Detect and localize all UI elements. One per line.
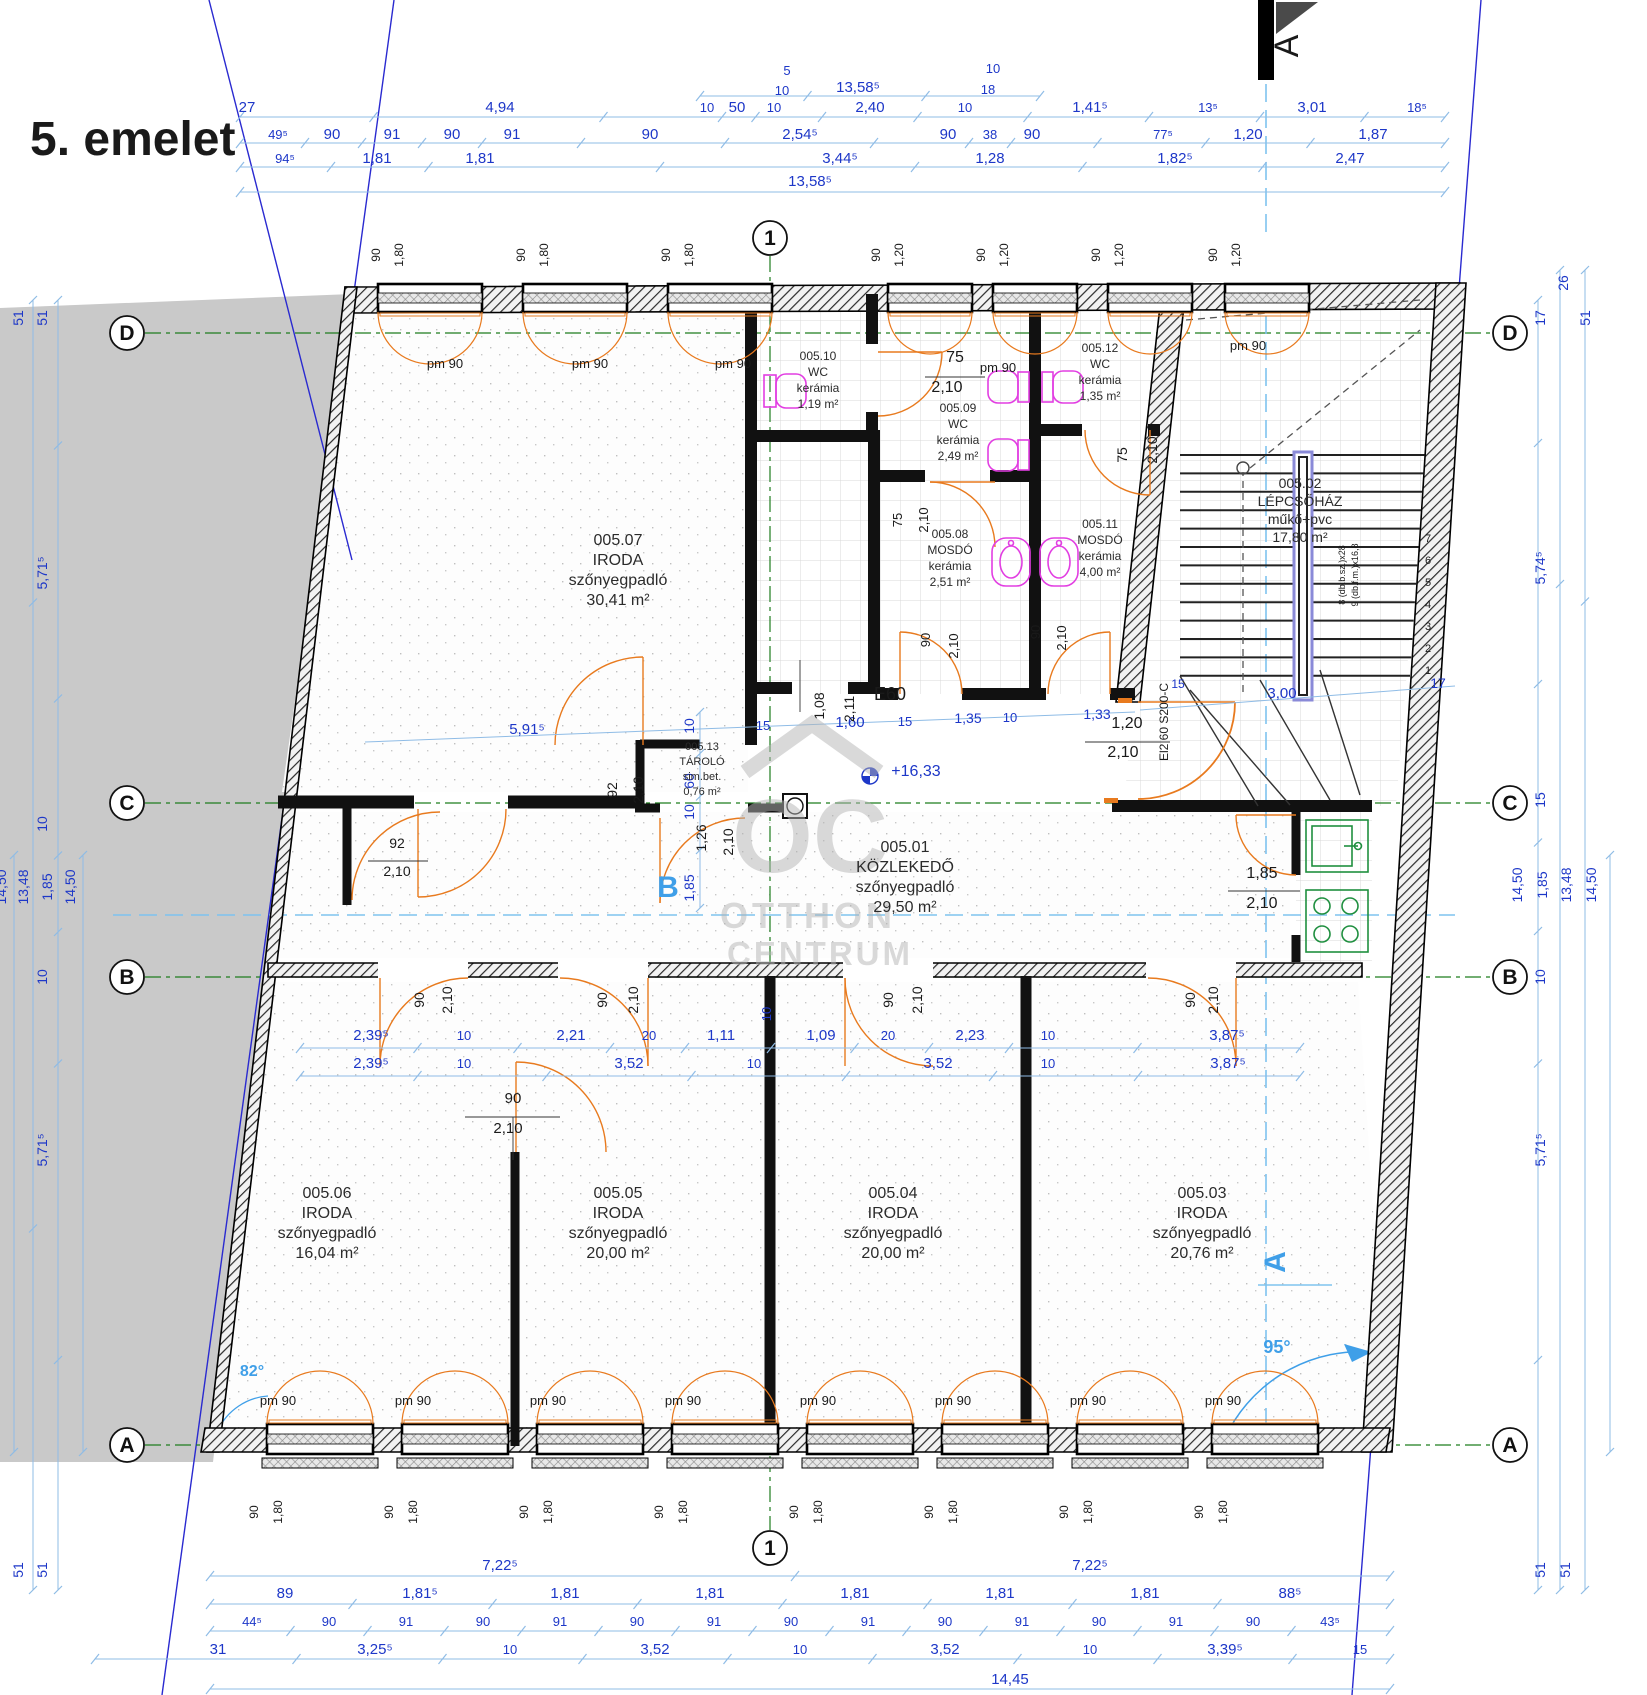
dim-label: pm 90 (530, 1393, 566, 1408)
dim-label: 90 (974, 248, 988, 262)
dim-label: 90 (369, 248, 383, 262)
dim-label: 91 (1169, 1614, 1183, 1629)
dim-label: 15 (1171, 677, 1185, 691)
floorplan-page: OC OTTHON CENTRUM 51013,58⁵1018274,94105… (0, 0, 1647, 1695)
dim-label: 13,48 (1558, 867, 1574, 902)
dim-label: 90 (630, 1614, 644, 1629)
dim-label: 1,20 (1111, 715, 1142, 732)
dim-label: 18 (981, 82, 995, 97)
dim-label: 3,25⁵ (357, 1641, 392, 1658)
watermark-line2: CENTRUM (727, 935, 913, 972)
dim-label: 3,52 (923, 1055, 952, 1072)
dim-label: 10 (700, 100, 714, 115)
dim-label: 2,10 (630, 776, 646, 803)
dim-label: 90 (247, 1505, 261, 1519)
dim-label: 94⁵ (275, 151, 295, 166)
dim-label: 89 (277, 1585, 294, 1602)
dim-label: 2,47 (1335, 150, 1364, 167)
dim-label: 90 (918, 633, 933, 647)
dim-chain (236, 112, 1449, 122)
dim-label: 10 (986, 61, 1000, 76)
dim-label: 2,21 (556, 1027, 585, 1044)
dim-label: pm 90 (427, 356, 463, 371)
svg-text:C: C (119, 792, 134, 815)
dim-label: 1,80 (946, 1500, 960, 1524)
dim-label: 10 (503, 1642, 517, 1657)
dim-label: 3,52 (640, 1641, 669, 1658)
dim-label: 3,00 (1267, 685, 1296, 702)
dim-label: 1,81 (362, 150, 391, 167)
dim-label: 2,10 (720, 828, 736, 855)
dim-label: 91 (399, 1614, 413, 1629)
dim-label: 1,20 (1112, 243, 1126, 267)
dim-label: 1,80 (682, 243, 696, 267)
dim-label: El2 60 S200-C (1157, 683, 1171, 761)
dim-chain (206, 1571, 1394, 1581)
dim-label: 77⁵ (1153, 127, 1173, 142)
dim-label: 13,48 (15, 869, 31, 904)
dim-label: 2,10 (1054, 625, 1069, 650)
dim-label: 90 (324, 126, 341, 143)
dim-label: 10 (759, 1007, 774, 1021)
dim-label: 90 (594, 992, 610, 1008)
dim-label: 51 (34, 310, 50, 326)
dim-label: 1,80 (1216, 1500, 1230, 1524)
dim-chain (206, 1599, 1394, 1609)
dim-label: 1,85 (39, 873, 55, 900)
dim-label: 43⁵ (1320, 1614, 1340, 1629)
grid-bubble-C: C (110, 786, 144, 820)
dim-label: 90 (411, 992, 427, 1008)
dim-label: 75 (1114, 447, 1130, 463)
dim-label: 5,71⁵ (1532, 1133, 1548, 1166)
dim-label: 95° (1263, 1337, 1290, 1357)
dim-chain (206, 1626, 1394, 1636)
dim-label: 38 (983, 127, 997, 142)
dim-label: 8 (db.b.sz.)x28 (1337, 545, 1347, 605)
dim-label: 5 (1425, 577, 1431, 589)
dim-chain (91, 1654, 1394, 1664)
dim-label: 51 (1532, 1562, 1548, 1578)
dim-label: pm 90 (665, 1393, 701, 1408)
dim-label: 2,10 (493, 1120, 522, 1137)
dim-label: 90 (1206, 248, 1220, 262)
dim-label: 90 (659, 248, 673, 262)
dim-label: 44⁵ (242, 1614, 262, 1629)
dim-label: 90 (1057, 1505, 1071, 1519)
dim-label: 2,39⁵ (353, 1055, 388, 1072)
dim-label: 90 (444, 126, 461, 143)
dim-label: 1,80 (811, 1500, 825, 1524)
dim-label: 1,20 (1229, 243, 1243, 267)
dim-label: pm 90 (260, 1393, 296, 1408)
dim-chain (1581, 266, 1589, 1594)
dim-label: 10 (457, 1028, 471, 1043)
watermark-line1: OTTHON (720, 895, 896, 936)
dim-label: 7 (1425, 533, 1431, 545)
dim-label: 14,45 (991, 1671, 1029, 1688)
dim-label: 2,10 (625, 986, 641, 1013)
dim-chain (1556, 266, 1564, 1594)
dim-label: 13⁵ (1198, 100, 1218, 115)
dim-label: 91 (861, 1614, 875, 1629)
dim-label: 1,35 (954, 710, 981, 726)
dim-label: 20 (881, 1028, 895, 1043)
svg-text:1: 1 (764, 1537, 776, 1560)
dim-label: 17 (1532, 310, 1548, 326)
dim-label: 3,87⁵ (1209, 1027, 1244, 1044)
dim-label: 1,09 (806, 1027, 835, 1044)
dim-label: 31 (210, 1641, 227, 1658)
dim-label: 26 (1555, 275, 1571, 291)
dim-label: 90 (869, 248, 883, 262)
dim-label: 14,50 (1509, 867, 1525, 902)
dim-label: 90 (938, 1614, 952, 1629)
dim-label: 13,58⁵ (788, 173, 832, 190)
dim-label: 1,81 (840, 1585, 869, 1602)
grid-bubble-1: 1 (753, 221, 787, 255)
dim-chain (1606, 851, 1614, 1456)
dim-label: 1,08 (811, 692, 827, 719)
dim-label: 88⁵ (1279, 1585, 1302, 1602)
svg-text:D: D (119, 322, 134, 345)
dim-label: 10 (767, 100, 781, 115)
dim-label: 14,50 (0, 869, 9, 904)
dim-label: 92 (604, 782, 620, 798)
dim-label: 90 (1182, 992, 1198, 1008)
dim-label: 91 (504, 126, 521, 143)
dim-label: 10 (1003, 710, 1017, 725)
dim-label: 2,10 (916, 507, 931, 532)
dim-label: 10 (1083, 1642, 1097, 1657)
dim-label: 4,94 (485, 99, 514, 116)
dim-label: pm 90 (1230, 338, 1266, 353)
dim-label: 1,80 (1081, 1500, 1095, 1524)
dim-label: 90 (1024, 126, 1041, 143)
dim-label: 1,20 (1233, 126, 1262, 143)
dim-label: 75 (890, 513, 905, 527)
grid-bubble-D: D (110, 316, 144, 350)
dim-label: pm 90 (800, 1393, 836, 1408)
grid-bubble-1: 1 (753, 1531, 787, 1565)
dim-label: 14,50 (1583, 867, 1599, 902)
dim-label: 10 (681, 718, 697, 734)
dim-label: 2,40 (855, 99, 884, 116)
dim-label: 49⁵ (268, 127, 288, 142)
dim-label: 2,39⁵ (353, 1027, 388, 1044)
dim-label: 90 (1246, 1614, 1260, 1629)
dim-label: 90 (517, 1505, 531, 1519)
dim-label: 10 (681, 804, 697, 820)
svg-text:B: B (119, 966, 134, 989)
dim-label: 15 (1353, 1642, 1367, 1657)
svg-text:B: B (1502, 966, 1517, 989)
dim-label: 91 (1015, 1614, 1029, 1629)
dim-label: 90 (1192, 1505, 1206, 1519)
dim-label: 1,81 (985, 1585, 1014, 1602)
dim-label: 10 (747, 1056, 761, 1071)
dim-label: 50 (729, 99, 746, 116)
dim-label: 90 (1028, 625, 1043, 639)
dim-label: 15 (756, 718, 770, 733)
dim-label: 1,81 (465, 150, 494, 167)
dim-label: 90 (514, 248, 528, 262)
dim-label: 82° (240, 1363, 264, 1380)
dim-label: 2 (1425, 643, 1431, 655)
dim-label: 5,71⁵ (34, 556, 50, 589)
dim-label: 10 (34, 969, 50, 985)
dim-label: 2,11 (841, 696, 857, 722)
dim-label: 1,41⁵ (1072, 99, 1107, 116)
grid-bubble-B: B (1493, 960, 1527, 994)
svg-text:1: 1 (764, 227, 776, 250)
dim-label: 17 (1430, 675, 1446, 691)
dim-label: 1,28 (975, 150, 1004, 167)
dim-label: 1,20 (892, 243, 906, 267)
dim-label: 3,01 (1297, 99, 1326, 116)
dim-label: A (1259, 1251, 1292, 1273)
dim-label: 10 (1532, 969, 1548, 985)
dim-label: 1,80 (676, 1500, 690, 1524)
dim-label: 90 (642, 126, 659, 143)
dim-label: 2,10 (1246, 895, 1277, 912)
dim-label: 27 (239, 99, 256, 116)
dim-label: 90 (322, 1614, 336, 1629)
dim-label: 5,74⁵ (1532, 551, 1548, 584)
dim-label: 90 (1089, 248, 1103, 262)
grid-bubble-C: C (1493, 786, 1527, 820)
dim-label: 75 (946, 349, 964, 366)
dim-label: 51 (1577, 310, 1593, 326)
svg-text:A: A (119, 1434, 134, 1457)
floor-plan-canvas: OC OTTHON CENTRUM 51013,58⁵1018274,94105… (0, 0, 1647, 1695)
grid-bubble-D: D (1493, 316, 1527, 350)
page-title: 5. emelet (30, 113, 235, 166)
dim-label: 2,54⁵ (782, 126, 817, 143)
dim-label: 2,10 (383, 863, 410, 879)
dim-label: +16,33 (891, 763, 940, 780)
dim-label: 1,87 (1358, 126, 1387, 143)
dim-label: 15 (898, 714, 912, 729)
dim-label: 1,20 (997, 243, 1011, 267)
dim-label: 14,50 (62, 869, 78, 904)
dim-label: 2,10 (1144, 436, 1160, 463)
grid-bubble-A: A (1493, 1428, 1527, 1462)
dim-label: 3,87⁵ (1210, 1055, 1245, 1072)
dim-label: 10 (775, 83, 789, 98)
grid-bubble-B: B (110, 960, 144, 994)
dim-label: 1,81 (695, 1585, 724, 1602)
dim-chain (236, 187, 1449, 197)
dim-label: 3,44⁵ (822, 150, 857, 167)
dim-label: 2,10 (1205, 986, 1221, 1013)
dim-label: 2,10 (931, 379, 962, 396)
dim-label: 10 (34, 816, 50, 832)
dim-label: 4 (1425, 599, 1431, 611)
dim-label: 90 (940, 126, 957, 143)
dim-label: 13,58⁵ (836, 79, 880, 96)
dim-label: A (1268, 34, 1306, 57)
dim-label: 10 (1041, 1028, 1055, 1043)
dim-label: 1,85 (681, 874, 697, 901)
dim-label: 1,26 (693, 824, 709, 851)
dim-label: 10 (793, 1642, 807, 1657)
dim-label: 1,80 (406, 1500, 420, 1524)
dim-label: 20 (642, 1028, 656, 1043)
dim-label: 90 (505, 1090, 522, 1107)
dim-label: 15 (1532, 792, 1548, 808)
dim-label: 1,80 (271, 1500, 285, 1524)
dim-label: 2,10 (1107, 744, 1138, 761)
dim-label: 91 (707, 1614, 721, 1629)
dim-label: 1,81 (550, 1585, 579, 1602)
dim-label: 2,10 (946, 633, 961, 658)
dim-label: 1,80 (541, 1500, 555, 1524)
dim-label: 2,10 (439, 986, 455, 1013)
dim-label: 1,80 (537, 243, 551, 267)
dim-label: 7,22⁵ (1072, 1557, 1107, 1574)
dim-label: pm 90 (1205, 1393, 1241, 1408)
dim-label: pm 90 (980, 360, 1016, 375)
dim-label: 1,85 (1246, 865, 1277, 882)
dim-label: 5,71⁵ (34, 1133, 50, 1166)
dim-label: 1,11 (707, 1027, 735, 1044)
dim-label: 1 (1425, 665, 1431, 677)
svg-text:C: C (1502, 792, 1517, 815)
dim-label: 51 (10, 1562, 26, 1578)
dim-label: B (657, 871, 679, 904)
dim-chain (1534, 296, 1542, 1594)
dim-label: pm 90 (572, 356, 608, 371)
dim-label: pm 90 (715, 356, 751, 371)
watermark-oc: OC (732, 779, 888, 895)
dim-label: 51 (34, 1562, 50, 1578)
dim-label: 1,82⁵ (1157, 150, 1192, 167)
dim-label: 2,23 (955, 1027, 984, 1044)
dim-label: pm 90 (935, 1393, 971, 1408)
dim-label: 3 (1425, 621, 1431, 633)
dim-label: 9 (db.f.m.)x16,8 (1350, 543, 1360, 606)
dim-label: 51 (1557, 1562, 1573, 1578)
dim-label: 3,39⁵ (1207, 1641, 1242, 1658)
dim-label: 90 (476, 1614, 490, 1629)
dim-label: 90 (1092, 1614, 1106, 1629)
dim-label: 91 (384, 126, 401, 143)
dim-label: 51 (10, 310, 26, 326)
dim-chain (206, 1684, 1394, 1694)
dim-label: 1,81⁵ (402, 1585, 437, 1602)
svg-text:A: A (1502, 1434, 1517, 1457)
dim-label: 10 (958, 100, 972, 115)
dim-chain (236, 138, 1449, 148)
dim-label: 90 (922, 1505, 936, 1519)
svg-text:D: D (1502, 322, 1517, 345)
dim-label: 90 (784, 1614, 798, 1629)
dim-label: 90 (787, 1505, 801, 1519)
dim-label: 2,10 (909, 986, 925, 1013)
dim-label: 90 (880, 992, 896, 1008)
dim-label: pm 90 (1070, 1393, 1106, 1408)
dim-label: 91 (553, 1614, 567, 1629)
dim-label: 18⁵ (1407, 100, 1427, 115)
dim-label: 5 (783, 63, 790, 78)
dim-label: 10 (1041, 1056, 1055, 1071)
dim-label: 3,52 (614, 1055, 643, 1072)
dim-label: 90 (652, 1505, 666, 1519)
dim-label: 7,22⁵ (482, 1557, 517, 1574)
dim-label: 1,33 (1083, 706, 1110, 722)
dim-label: E60 (874, 684, 906, 704)
dim-label: 1,85 (1534, 871, 1550, 898)
dim-label: 6 (1425, 555, 1431, 567)
dim-label: pm 90 (395, 1393, 431, 1408)
dim-label: 90 (382, 1505, 396, 1519)
grid-bubble-A: A (110, 1428, 144, 1462)
dim-label: 1,80 (392, 243, 406, 267)
dim-label: 10 (457, 1056, 471, 1071)
dim-label: 92 (389, 835, 405, 851)
dim-label: 3,52 (930, 1641, 959, 1658)
dim-label: 5,91⁵ (509, 721, 544, 738)
dim-label: 1,81 (1130, 1585, 1159, 1602)
